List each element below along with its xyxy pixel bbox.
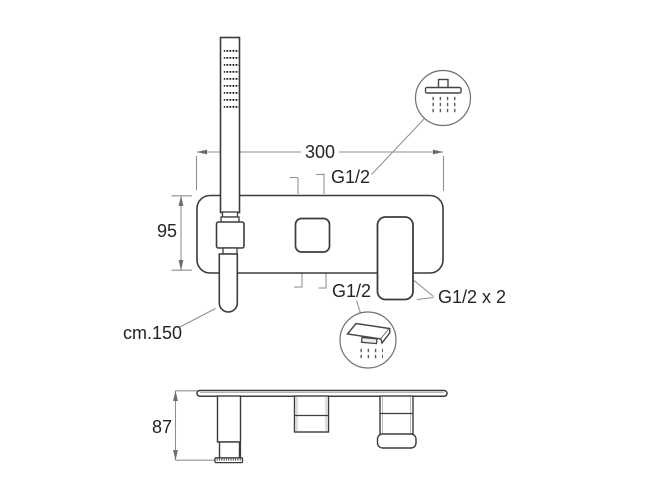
shower-head-bar (426, 88, 462, 94)
arrow-300-right (433, 150, 444, 155)
spout-spray-icon (340, 312, 396, 368)
hose-connector (223, 248, 237, 254)
dim-95-label: 95 (157, 221, 177, 241)
top-view-handle (378, 396, 417, 448)
top-view-diverter (295, 396, 329, 432)
top-view-holder-outlet (220, 442, 240, 460)
mixer-handle (378, 217, 414, 300)
top-view-holder-knurl (216, 459, 242, 462)
overhead-shower-icon (416, 71, 471, 126)
leader-outlets-1 (411, 278, 434, 297)
spout-spray-drops (357, 347, 383, 361)
spout-mouth (362, 338, 378, 344)
inlet-bottom-label: G1/2 (332, 281, 371, 301)
inlet-top-label: G1/2 (331, 167, 370, 187)
top-view-handle-knob (378, 434, 417, 448)
diverter-button (296, 219, 330, 253)
arrow-95-bottom (179, 260, 184, 271)
top-view (197, 391, 447, 463)
arrow-300-left (197, 150, 208, 155)
shower-arm-nub (439, 80, 449, 89)
spray-face-dots (224, 47, 239, 112)
shower-hose (219, 254, 237, 312)
arrow-87-top (173, 391, 178, 402)
top-view-holder (215, 396, 243, 463)
wand-connector-upper (223, 212, 238, 217)
outlets-label: G1/2 x 2 (438, 287, 506, 307)
wand-holder (217, 222, 245, 248)
hose-length-label: cm.150 (123, 323, 182, 343)
leader-outlets-2 (417, 298, 434, 300)
leader-hose-length (179, 309, 216, 328)
dim-300-label: 300 (305, 142, 335, 162)
top-view-diverter-body (295, 396, 329, 432)
drawing-svg: 300 95 87 G1/2 G1/2 G1/2 x 2 cm.150 (0, 0, 667, 500)
technical-drawing-canvas: 300 95 87 G1/2 G1/2 G1/2 x 2 cm.150 (0, 0, 667, 500)
top-view-holder-body (218, 396, 241, 442)
shower-drops (429, 96, 460, 113)
leader-to-shower-icon (372, 119, 425, 175)
leader-to-spout-icon (357, 301, 361, 314)
arrow-87-bottom (173, 450, 178, 461)
arrow-95-top (179, 196, 184, 207)
dim-87-label: 87 (152, 417, 172, 437)
